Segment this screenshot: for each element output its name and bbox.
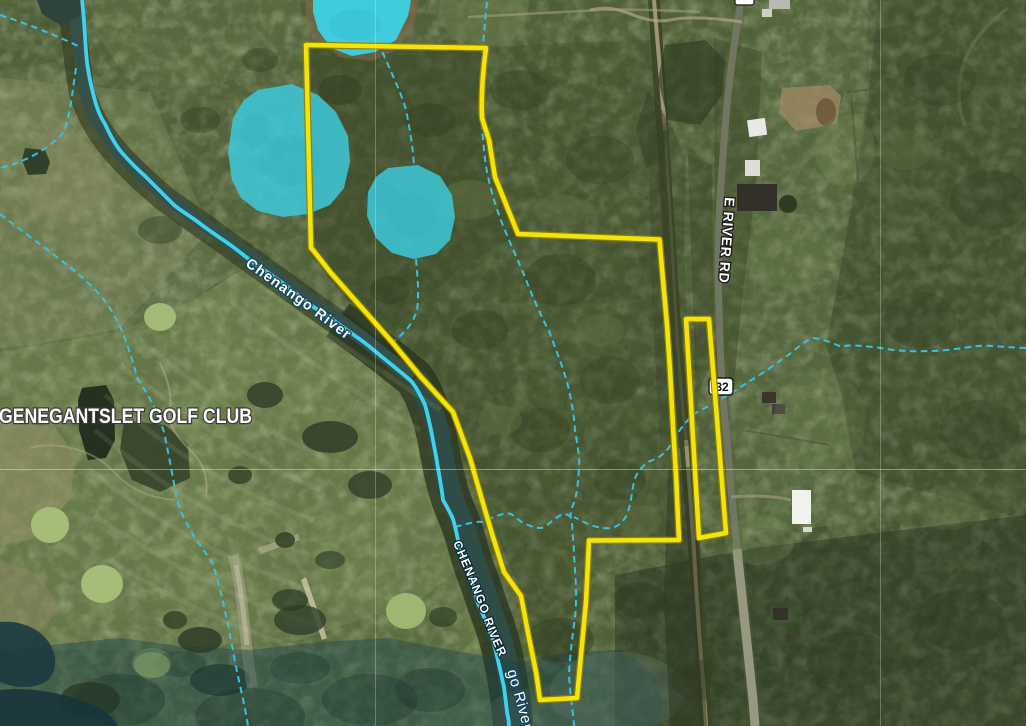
svg-text:GENEGANTSLET GOLF CLUB: GENEGANTSLET GOLF CLUB (0, 405, 252, 428)
